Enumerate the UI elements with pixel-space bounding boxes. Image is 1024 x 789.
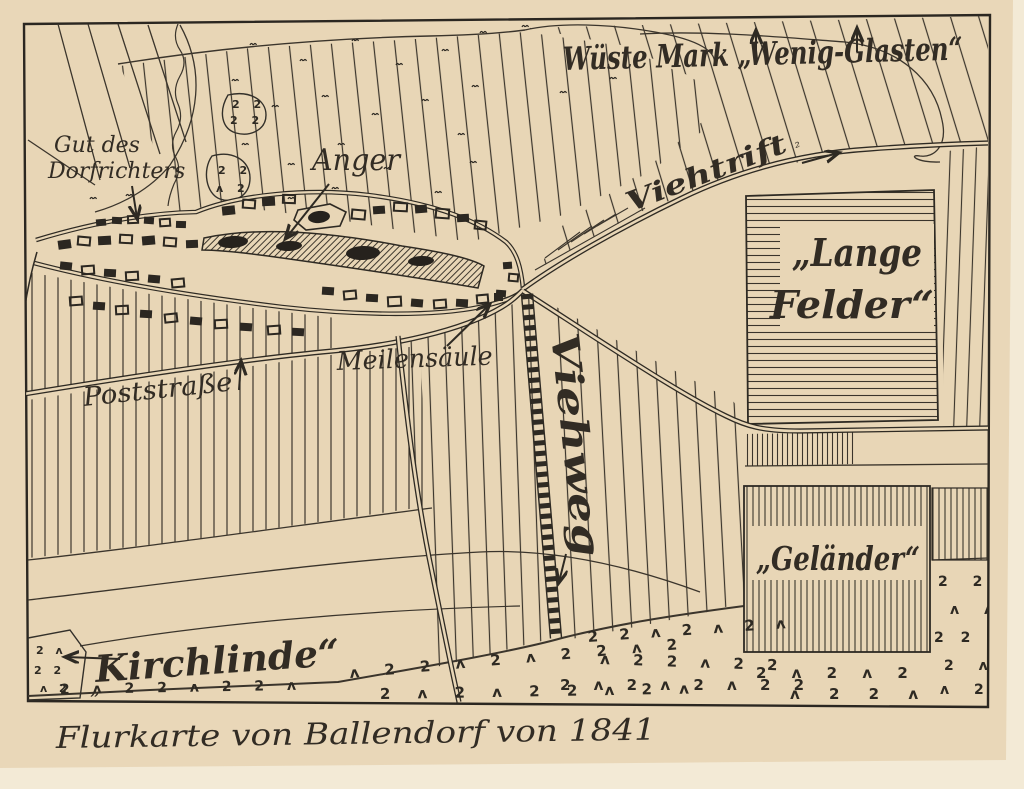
label-gut-des: Gut des [54,133,140,158]
label-felder: Felder“ [769,282,934,327]
scrub-row: 2 2 [218,164,252,177]
label-dorfrichters: Dorfrichters [47,159,185,184]
scrub-row: 2 ʌ 2 ʌ 2 [756,664,918,682]
scrub-row: 2 2 [232,98,266,111]
meilensaeule-marker [494,293,503,301]
scrub-row: ʌ 2 [940,682,994,698]
label-anger: Anger [309,143,401,178]
label-meilensaeule: Meilensäule [335,342,493,377]
scrub-row: 2 ʌ [36,644,67,657]
scrub-row: 2 2 [938,574,992,590]
scrub-row: ʌ 2 [40,682,71,695]
label-gelaender: „Geländer“ [756,539,920,578]
scrub-row: 2 2 [230,114,264,127]
flurkarte-map: 2 ʌ 2 2 ʌ 2 2 ʌ ʌ 2 2 ʌ 2 ʌ 2 2 ʌ 2 2 ʌ … [0,0,1024,789]
hatch-band-below-lange-felder [745,432,856,466]
label-lange: „Lange [792,230,922,275]
scrub-row: ʌ 2 2 ʌ [790,685,930,703]
scrub-row: ʌ 2 [216,182,250,195]
scrub-row: 2 2 [34,664,65,677]
patch-quote-mark: „ [90,675,100,699]
scanned-flurkarte-page: 2 ʌ 2 2 ʌ 2 2 ʌ ʌ 2 2 ʌ 2 ʌ 2 2 ʌ 2 2 ʌ … [0,0,1024,789]
gelaender-side-patch [932,488,988,560]
strips-right-margin [940,146,988,428]
